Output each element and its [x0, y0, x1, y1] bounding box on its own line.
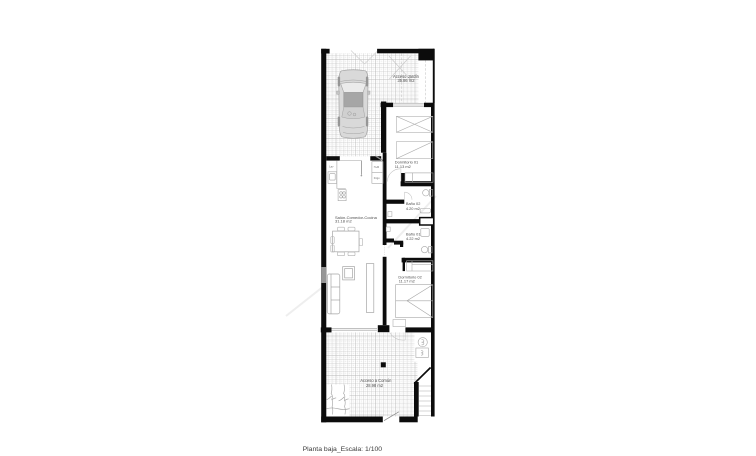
- svg-text:31.18 m2: 31.18 m2: [335, 219, 352, 224]
- svg-text:Lav: Lav: [329, 164, 334, 168]
- svg-text:4.22 m2: 4.22 m2: [406, 236, 420, 241]
- svg-text:4.20 m2: 4.20 m2: [406, 206, 420, 211]
- svg-text:Frigo: Frigo: [374, 177, 380, 180]
- svg-text:35.86 m2: 35.86 m2: [397, 78, 415, 83]
- svg-text:Planta baja_Escala: 1/100: Planta baja_Escala: 1/100: [303, 446, 383, 453]
- svg-text:11.17 m2: 11.17 m2: [399, 279, 415, 284]
- svg-text:28.98 m2: 28.98 m2: [366, 383, 384, 388]
- svg-text:H+M: H+M: [374, 166, 379, 169]
- svg-text:11.13 m2: 11.13 m2: [395, 164, 411, 169]
